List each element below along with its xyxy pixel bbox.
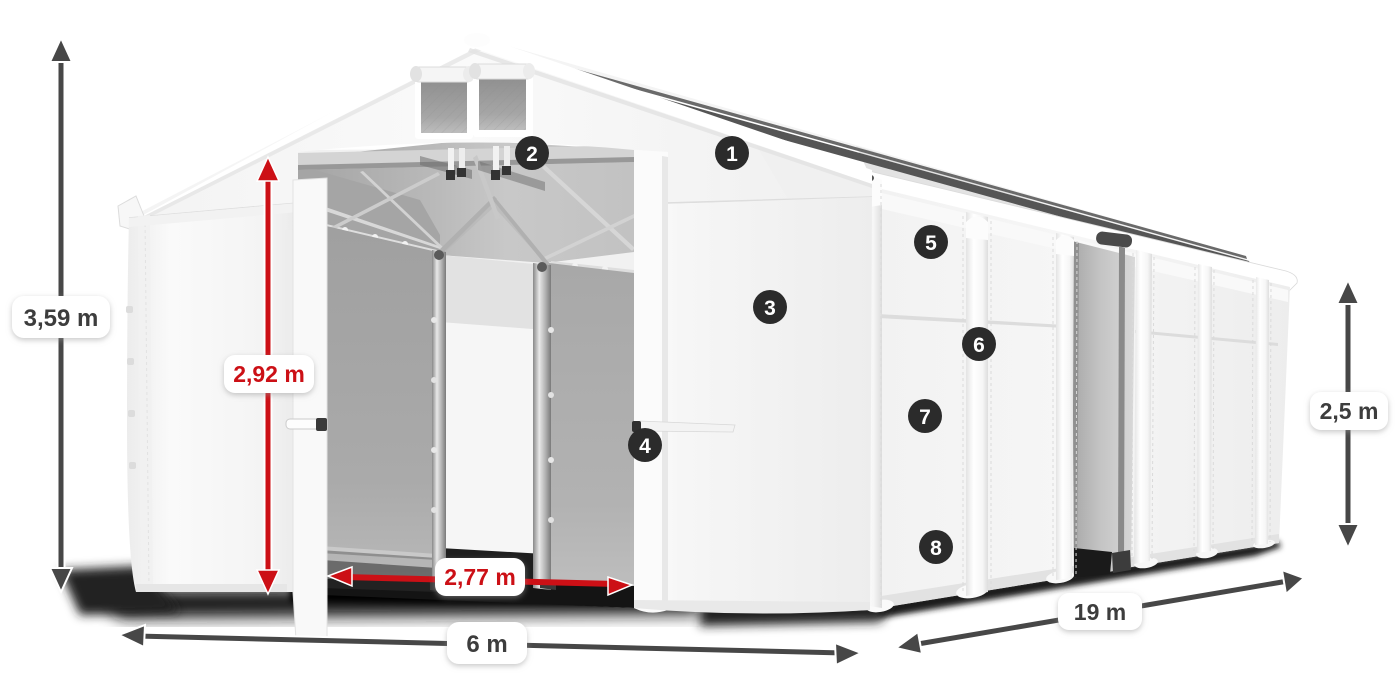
svg-text:6: 6	[973, 334, 985, 357]
svg-text:3: 3	[764, 297, 776, 320]
svg-text:7: 7	[919, 406, 931, 429]
svg-text:6 m: 6 m	[466, 631, 507, 658]
svg-text:2,77 m: 2,77 m	[444, 564, 516, 590]
svg-text:2,5 m: 2,5 m	[1320, 398, 1379, 424]
svg-text:2: 2	[526, 143, 538, 166]
svg-text:2,92 m: 2,92 m	[233, 361, 305, 387]
svg-text:8: 8	[930, 537, 942, 560]
svg-text:3,59 m: 3,59 m	[24, 305, 99, 332]
svg-text:5: 5	[925, 232, 937, 255]
svg-text:19 m: 19 m	[1074, 599, 1126, 625]
svg-text:4: 4	[639, 435, 651, 458]
svg-text:1: 1	[726, 143, 738, 166]
